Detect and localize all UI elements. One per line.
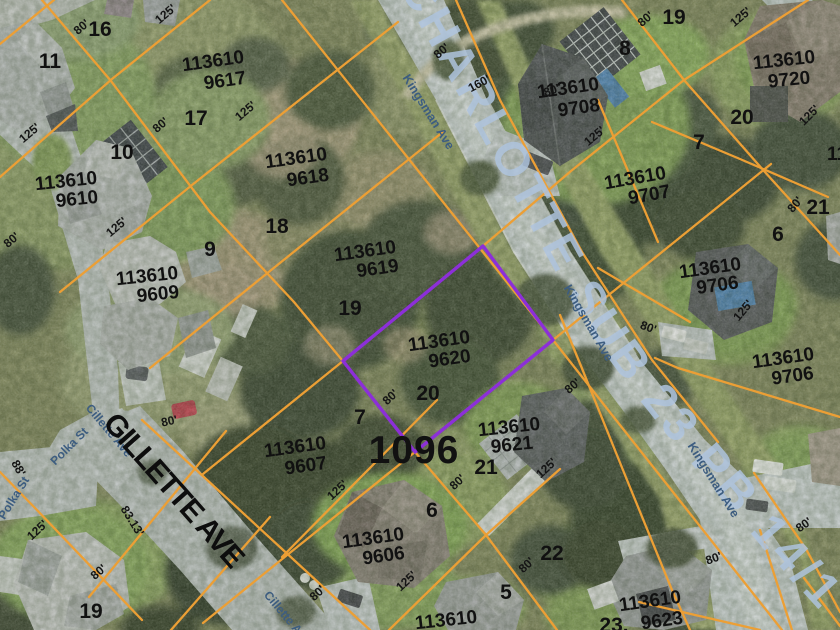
svg-text:9: 9 <box>204 238 216 261</box>
svg-text:9609: 9609 <box>136 282 180 307</box>
svg-text:6: 6 <box>426 499 438 522</box>
svg-text:16: 16 <box>88 18 111 41</box>
svg-text:9610: 9610 <box>55 187 99 212</box>
svg-text:1096: 1096 <box>369 429 460 472</box>
svg-text:5: 5 <box>500 581 512 604</box>
svg-text:21: 21 <box>806 196 830 219</box>
svg-text:6: 6 <box>772 223 784 246</box>
svg-text:8: 8 <box>619 37 631 60</box>
svg-text:21: 21 <box>474 456 498 479</box>
svg-text:113610: 113610 <box>827 144 840 165</box>
svg-text:17: 17 <box>184 107 207 130</box>
svg-text:19: 19 <box>662 6 685 29</box>
svg-text:10: 10 <box>110 141 133 164</box>
svg-text:11: 11 <box>39 50 62 73</box>
svg-text:20: 20 <box>730 106 753 129</box>
svg-text:9621: 9621 <box>490 433 535 458</box>
svg-text:7: 7 <box>354 406 366 429</box>
svg-text:22: 22 <box>540 542 563 565</box>
svg-text:19: 19 <box>79 600 102 623</box>
svg-text:9720: 9720 <box>767 67 811 92</box>
svg-text:18: 18 <box>265 215 289 238</box>
svg-text:23.: 23. <box>599 614 628 630</box>
svg-text:19: 19 <box>338 297 361 320</box>
svg-text:20: 20 <box>416 382 439 405</box>
svg-text:7: 7 <box>693 131 705 154</box>
